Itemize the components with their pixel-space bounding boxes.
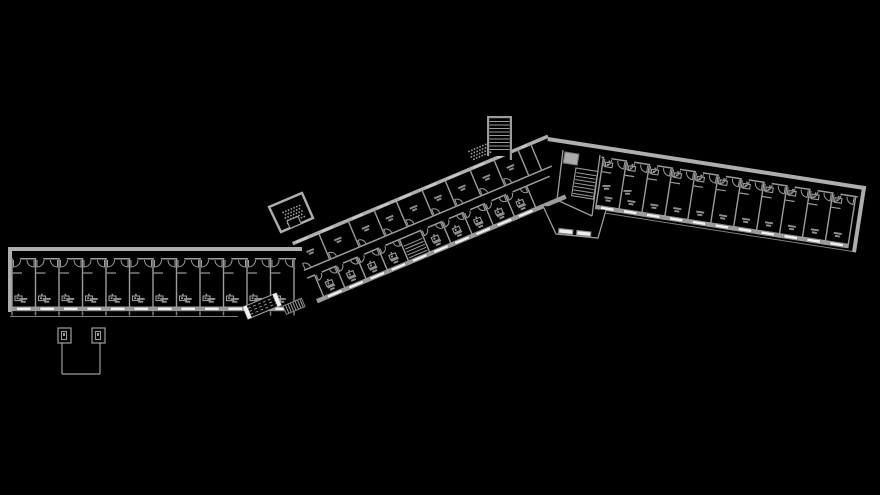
door-opening bbox=[83, 258, 90, 260]
shape bbox=[481, 151, 483, 153]
door-arc-icon bbox=[74, 260, 81, 267]
shape bbox=[65, 294, 67, 296]
door-arc-icon bbox=[215, 260, 222, 267]
room-label bbox=[604, 196, 613, 202]
elevator bbox=[563, 152, 579, 165]
door-opening bbox=[201, 258, 208, 260]
window bbox=[348, 280, 364, 289]
divider-wall bbox=[378, 249, 389, 272]
room-label bbox=[627, 200, 636, 206]
shape bbox=[90, 298, 98, 300]
door-arc-icon bbox=[708, 175, 716, 183]
door-opening bbox=[60, 258, 67, 260]
door-arc-icon bbox=[84, 260, 91, 267]
shape bbox=[719, 214, 727, 217]
shape bbox=[481, 155, 483, 157]
room-label bbox=[673, 207, 682, 213]
shape bbox=[766, 224, 771, 227]
shape bbox=[744, 185, 746, 187]
canopy-column-box bbox=[92, 328, 105, 343]
divider-wall bbox=[319, 234, 331, 259]
room bbox=[485, 195, 512, 223]
window bbox=[16, 307, 31, 311]
bath-partition bbox=[671, 182, 680, 183]
door-opening bbox=[271, 258, 278, 260]
room bbox=[336, 257, 363, 285]
door-arc-icon bbox=[640, 165, 648, 173]
shape bbox=[604, 196, 612, 199]
shape bbox=[484, 147, 486, 149]
door-arc-icon bbox=[663, 168, 671, 176]
window bbox=[433, 244, 449, 253]
room-label bbox=[833, 232, 842, 238]
room-label bbox=[719, 214, 728, 220]
junction-window bbox=[559, 229, 573, 235]
canopy-column-box bbox=[58, 328, 71, 343]
divider-wall bbox=[505, 195, 516, 218]
shape bbox=[476, 220, 478, 222]
shape bbox=[232, 301, 237, 303]
shape bbox=[696, 211, 704, 214]
door-arc-icon bbox=[286, 260, 293, 267]
shape bbox=[348, 273, 350, 275]
shape bbox=[650, 203, 658, 206]
divider-wall bbox=[494, 160, 506, 185]
shape bbox=[746, 182, 748, 184]
room-label bbox=[306, 248, 315, 255]
window bbox=[806, 238, 820, 244]
middle-wing bbox=[292, 135, 573, 304]
bath-partition bbox=[625, 175, 634, 176]
window bbox=[157, 307, 172, 311]
shape bbox=[700, 175, 702, 177]
window bbox=[623, 209, 637, 215]
mullion-tick bbox=[152, 312, 154, 316]
door-arc-icon bbox=[272, 260, 279, 267]
door-arc-icon bbox=[131, 260, 138, 267]
shape bbox=[87, 297, 89, 299]
bath-partition bbox=[717, 189, 726, 190]
room-label bbox=[334, 236, 343, 243]
window bbox=[577, 231, 591, 237]
column-glyph-fill bbox=[97, 333, 99, 336]
shape bbox=[625, 193, 630, 195]
room bbox=[315, 266, 342, 294]
shape bbox=[19, 298, 27, 300]
window bbox=[181, 307, 196, 311]
room-label bbox=[603, 185, 611, 190]
room bbox=[199, 258, 224, 312]
divider-wall bbox=[335, 267, 346, 290]
window bbox=[829, 241, 843, 247]
shape bbox=[115, 301, 120, 303]
room bbox=[152, 258, 177, 312]
shape bbox=[43, 298, 51, 300]
room-label bbox=[385, 215, 394, 222]
bath-partition bbox=[785, 200, 794, 201]
shape bbox=[479, 149, 481, 151]
room bbox=[421, 221, 448, 249]
shape bbox=[815, 192, 817, 194]
door-arc-icon bbox=[37, 260, 44, 267]
shape bbox=[765, 221, 773, 224]
door-arc-icon bbox=[823, 193, 831, 201]
shape bbox=[478, 156, 480, 158]
shape bbox=[627, 200, 635, 203]
door-opening bbox=[177, 258, 184, 260]
mullion-tick bbox=[82, 312, 84, 316]
shape bbox=[137, 298, 145, 300]
door-opening bbox=[154, 258, 161, 260]
window bbox=[496, 218, 512, 227]
floorplan bbox=[0, 0, 880, 495]
shape bbox=[454, 229, 456, 231]
shape bbox=[184, 298, 192, 300]
shape bbox=[471, 153, 473, 155]
room-label bbox=[787, 225, 796, 231]
shape bbox=[473, 158, 475, 160]
junction-stair bbox=[572, 168, 598, 199]
shape bbox=[699, 178, 701, 180]
door-opening bbox=[224, 258, 231, 260]
shape bbox=[676, 174, 678, 176]
shape bbox=[471, 149, 473, 151]
shape bbox=[607, 164, 609, 166]
window bbox=[518, 209, 534, 218]
shape bbox=[405, 241, 423, 249]
mullion-tick bbox=[35, 312, 37, 316]
divider-wall bbox=[82, 259, 83, 307]
shape bbox=[111, 297, 113, 299]
door-arc-icon bbox=[108, 260, 115, 267]
shape bbox=[631, 164, 633, 166]
door-arc-icon bbox=[800, 189, 808, 197]
tower-wall-right bbox=[510, 116, 512, 160]
shape bbox=[476, 157, 478, 159]
room bbox=[129, 258, 154, 312]
shape bbox=[113, 298, 121, 300]
door-arc-icon bbox=[145, 260, 152, 267]
shape bbox=[790, 192, 792, 194]
room-label bbox=[482, 174, 491, 181]
room-label bbox=[650, 203, 659, 209]
shape bbox=[88, 294, 90, 296]
room bbox=[11, 258, 36, 312]
shape bbox=[604, 188, 609, 190]
door-arc-icon bbox=[155, 260, 162, 267]
divider-wall bbox=[396, 202, 408, 227]
shape bbox=[723, 178, 725, 180]
divider-wall bbox=[441, 222, 452, 245]
shape bbox=[468, 150, 470, 152]
door-arc-icon bbox=[846, 196, 854, 204]
room bbox=[506, 186, 533, 214]
stair-tower bbox=[468, 116, 512, 161]
room bbox=[379, 239, 406, 267]
shape bbox=[651, 206, 656, 209]
mullion-tick bbox=[223, 312, 225, 316]
divider-wall bbox=[470, 171, 482, 196]
shape bbox=[473, 155, 475, 157]
room bbox=[463, 203, 490, 231]
door-arc-icon bbox=[98, 260, 105, 267]
shape bbox=[181, 297, 183, 299]
window bbox=[369, 271, 385, 280]
entrance-canopy bbox=[58, 328, 105, 374]
shape bbox=[433, 238, 435, 240]
shape bbox=[653, 171, 655, 173]
shape bbox=[792, 189, 794, 191]
door-arc-icon bbox=[61, 260, 68, 267]
shape bbox=[838, 196, 840, 198]
divider-wall bbox=[526, 186, 537, 209]
divider-wall bbox=[357, 258, 368, 281]
window bbox=[761, 231, 775, 237]
shape bbox=[44, 301, 49, 303]
mullion-tick bbox=[129, 312, 131, 316]
window bbox=[715, 224, 729, 230]
shape bbox=[605, 199, 610, 202]
shape bbox=[628, 203, 633, 206]
shape bbox=[205, 297, 207, 299]
shape bbox=[158, 297, 160, 299]
bath-partition bbox=[602, 172, 611, 173]
bath-partition bbox=[763, 197, 772, 198]
shape bbox=[91, 301, 96, 303]
shape bbox=[134, 297, 136, 299]
shape bbox=[229, 294, 231, 296]
window bbox=[228, 307, 243, 311]
shape bbox=[40, 297, 42, 299]
room-label bbox=[742, 218, 751, 224]
shape bbox=[603, 185, 611, 187]
shape bbox=[485, 143, 487, 145]
mullion-tick bbox=[199, 312, 201, 316]
shape bbox=[476, 150, 478, 152]
door-opening bbox=[13, 258, 20, 260]
shape bbox=[789, 228, 794, 231]
door-arc-icon bbox=[192, 260, 199, 267]
room-label bbox=[409, 205, 418, 212]
divider-wall bbox=[176, 259, 177, 307]
mullion-tick bbox=[11, 312, 13, 316]
door-arc-icon bbox=[754, 182, 762, 190]
window bbox=[692, 220, 706, 226]
entrance-ramp bbox=[243, 293, 281, 319]
door-arc-icon bbox=[168, 260, 175, 267]
window bbox=[784, 234, 798, 240]
door-arc-icon bbox=[14, 260, 21, 267]
shape bbox=[138, 301, 143, 303]
door-arc-icon bbox=[686, 172, 694, 180]
junction-wall bbox=[557, 150, 563, 200]
shape bbox=[743, 221, 748, 224]
shape bbox=[159, 294, 161, 296]
door-arc-icon bbox=[27, 260, 34, 267]
shape bbox=[835, 235, 840, 238]
divider-wall bbox=[374, 211, 386, 236]
bath-partition bbox=[694, 186, 703, 187]
shape bbox=[68, 301, 73, 303]
shape bbox=[769, 185, 771, 187]
shape bbox=[404, 238, 422, 246]
shape bbox=[720, 217, 725, 220]
room bbox=[223, 258, 248, 312]
corridor-wall bbox=[601, 156, 857, 197]
shape bbox=[497, 211, 499, 213]
shape bbox=[673, 207, 681, 210]
mullion-tick bbox=[105, 312, 107, 316]
shape bbox=[41, 294, 43, 296]
door-arc-icon bbox=[777, 186, 785, 194]
shape bbox=[811, 228, 819, 231]
room bbox=[58, 258, 83, 312]
door-arc-icon bbox=[178, 260, 185, 267]
shape bbox=[206, 294, 208, 296]
room-label bbox=[624, 190, 632, 195]
shape bbox=[185, 301, 190, 303]
shape bbox=[484, 150, 486, 152]
shape bbox=[608, 160, 610, 162]
shape bbox=[18, 294, 20, 296]
room-label bbox=[810, 228, 819, 234]
shape bbox=[482, 148, 484, 150]
shape bbox=[408, 247, 426, 255]
shape bbox=[518, 202, 520, 204]
bath-partition bbox=[808, 204, 817, 205]
window bbox=[669, 217, 683, 223]
shape bbox=[391, 255, 393, 257]
divider-wall bbox=[58, 259, 59, 307]
window bbox=[204, 307, 219, 311]
room bbox=[35, 258, 60, 312]
elevator-cab bbox=[563, 152, 579, 165]
divider-wall bbox=[484, 204, 495, 227]
shape bbox=[767, 189, 769, 191]
divider-wall bbox=[199, 259, 200, 307]
divider-wall bbox=[105, 259, 106, 307]
window bbox=[87, 307, 102, 311]
divider-wall bbox=[129, 259, 130, 307]
north-wall bbox=[8, 247, 302, 251]
divider-wall bbox=[445, 181, 457, 206]
room-label bbox=[458, 184, 467, 191]
shape bbox=[813, 196, 815, 198]
junction-south-wall bbox=[543, 206, 606, 238]
shape bbox=[228, 297, 230, 299]
divider-wall bbox=[293, 259, 294, 307]
shape bbox=[182, 294, 184, 296]
shape bbox=[253, 294, 255, 296]
shape bbox=[327, 282, 329, 284]
shape bbox=[476, 154, 478, 156]
window bbox=[390, 262, 406, 271]
divider-wall bbox=[314, 276, 325, 299]
divider-wall bbox=[11, 259, 12, 307]
shape bbox=[482, 145, 484, 147]
door-opening bbox=[130, 258, 137, 260]
shape bbox=[17, 297, 19, 299]
shape bbox=[722, 181, 724, 183]
mullion-tick bbox=[58, 312, 60, 316]
door-arc-icon bbox=[731, 179, 739, 187]
room-label bbox=[764, 221, 773, 227]
bath-partition bbox=[648, 179, 657, 180]
divider-wall bbox=[518, 150, 530, 175]
shape bbox=[654, 167, 656, 169]
window bbox=[40, 307, 55, 311]
shape bbox=[788, 225, 796, 228]
shape bbox=[162, 301, 167, 303]
floorplan-svg bbox=[0, 0, 880, 495]
shape bbox=[479, 152, 481, 154]
window bbox=[110, 307, 125, 311]
window bbox=[327, 289, 343, 298]
room-label bbox=[506, 164, 515, 171]
room bbox=[105, 258, 130, 312]
divider-wall bbox=[35, 259, 36, 307]
bath-partition bbox=[831, 207, 840, 208]
shape bbox=[479, 146, 481, 148]
divider-wall bbox=[246, 259, 247, 307]
door-arc-icon bbox=[225, 260, 232, 267]
window bbox=[134, 307, 149, 311]
shape bbox=[473, 151, 475, 153]
room-label bbox=[434, 194, 443, 201]
junction-window bbox=[577, 231, 591, 237]
door-arc-icon bbox=[121, 260, 128, 267]
window bbox=[63, 307, 78, 311]
window bbox=[738, 227, 752, 233]
door-arc-icon bbox=[202, 260, 209, 267]
door-arc-icon bbox=[239, 260, 246, 267]
shape bbox=[674, 210, 679, 213]
shape bbox=[66, 298, 74, 300]
door-opening bbox=[107, 258, 114, 260]
shape bbox=[630, 167, 632, 169]
nw-stair-block bbox=[269, 193, 313, 232]
shape bbox=[624, 190, 632, 192]
shape bbox=[474, 148, 476, 150]
shape bbox=[476, 147, 478, 149]
shape bbox=[697, 214, 702, 217]
room bbox=[357, 248, 384, 276]
room-label bbox=[361, 225, 370, 232]
door-arc-icon bbox=[51, 260, 58, 267]
divider-wall bbox=[463, 213, 474, 236]
door-opening bbox=[36, 258, 43, 260]
window bbox=[559, 229, 573, 235]
door-opening bbox=[248, 258, 255, 260]
lower-rooms bbox=[314, 185, 537, 298]
shape bbox=[834, 232, 842, 235]
window bbox=[475, 227, 491, 236]
shape bbox=[470, 156, 472, 158]
shape bbox=[484, 153, 486, 155]
door-arc-icon bbox=[617, 161, 625, 169]
mullion-tick bbox=[176, 312, 178, 316]
room bbox=[176, 258, 201, 312]
mullion-tick bbox=[270, 312, 272, 316]
tower-wall-top bbox=[487, 116, 512, 118]
column-glyph-fill bbox=[63, 333, 65, 336]
shape bbox=[406, 244, 424, 252]
shape bbox=[64, 297, 66, 299]
shape bbox=[160, 298, 168, 300]
divider-wall bbox=[348, 222, 360, 247]
shape bbox=[370, 264, 372, 266]
window bbox=[646, 213, 660, 219]
